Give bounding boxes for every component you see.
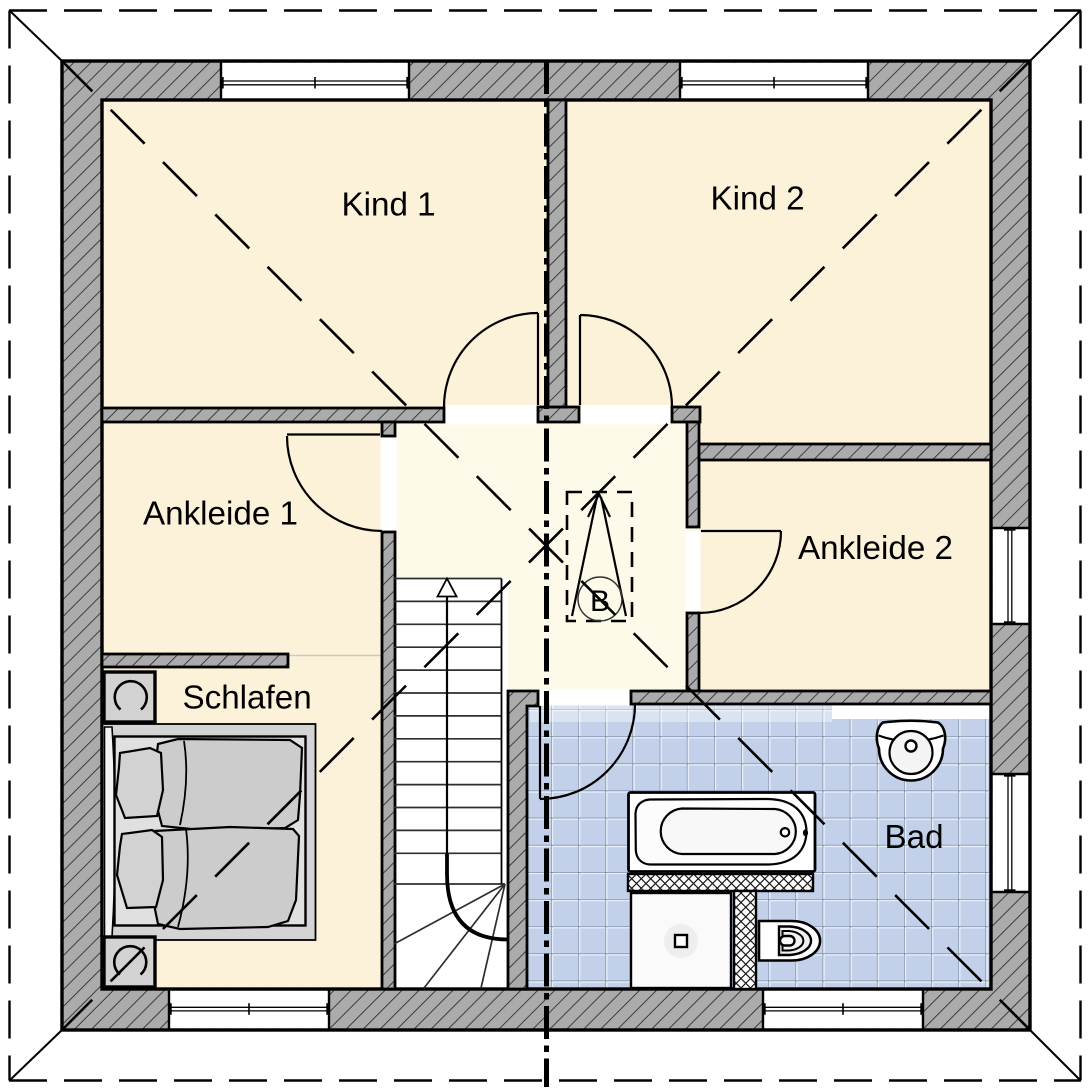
svg-text:Kind 2: Kind 2 [711,181,805,218]
svg-text:Kind 1: Kind 1 [342,187,436,224]
svg-text:B: B [590,585,610,618]
svg-text:Ankleide 2: Ankleide 2 [798,530,953,567]
svg-text:Bad: Bad [885,819,944,856]
svg-text:Ankleide 1: Ankleide 1 [143,496,298,533]
svg-text:Schlafen: Schlafen [183,680,312,717]
